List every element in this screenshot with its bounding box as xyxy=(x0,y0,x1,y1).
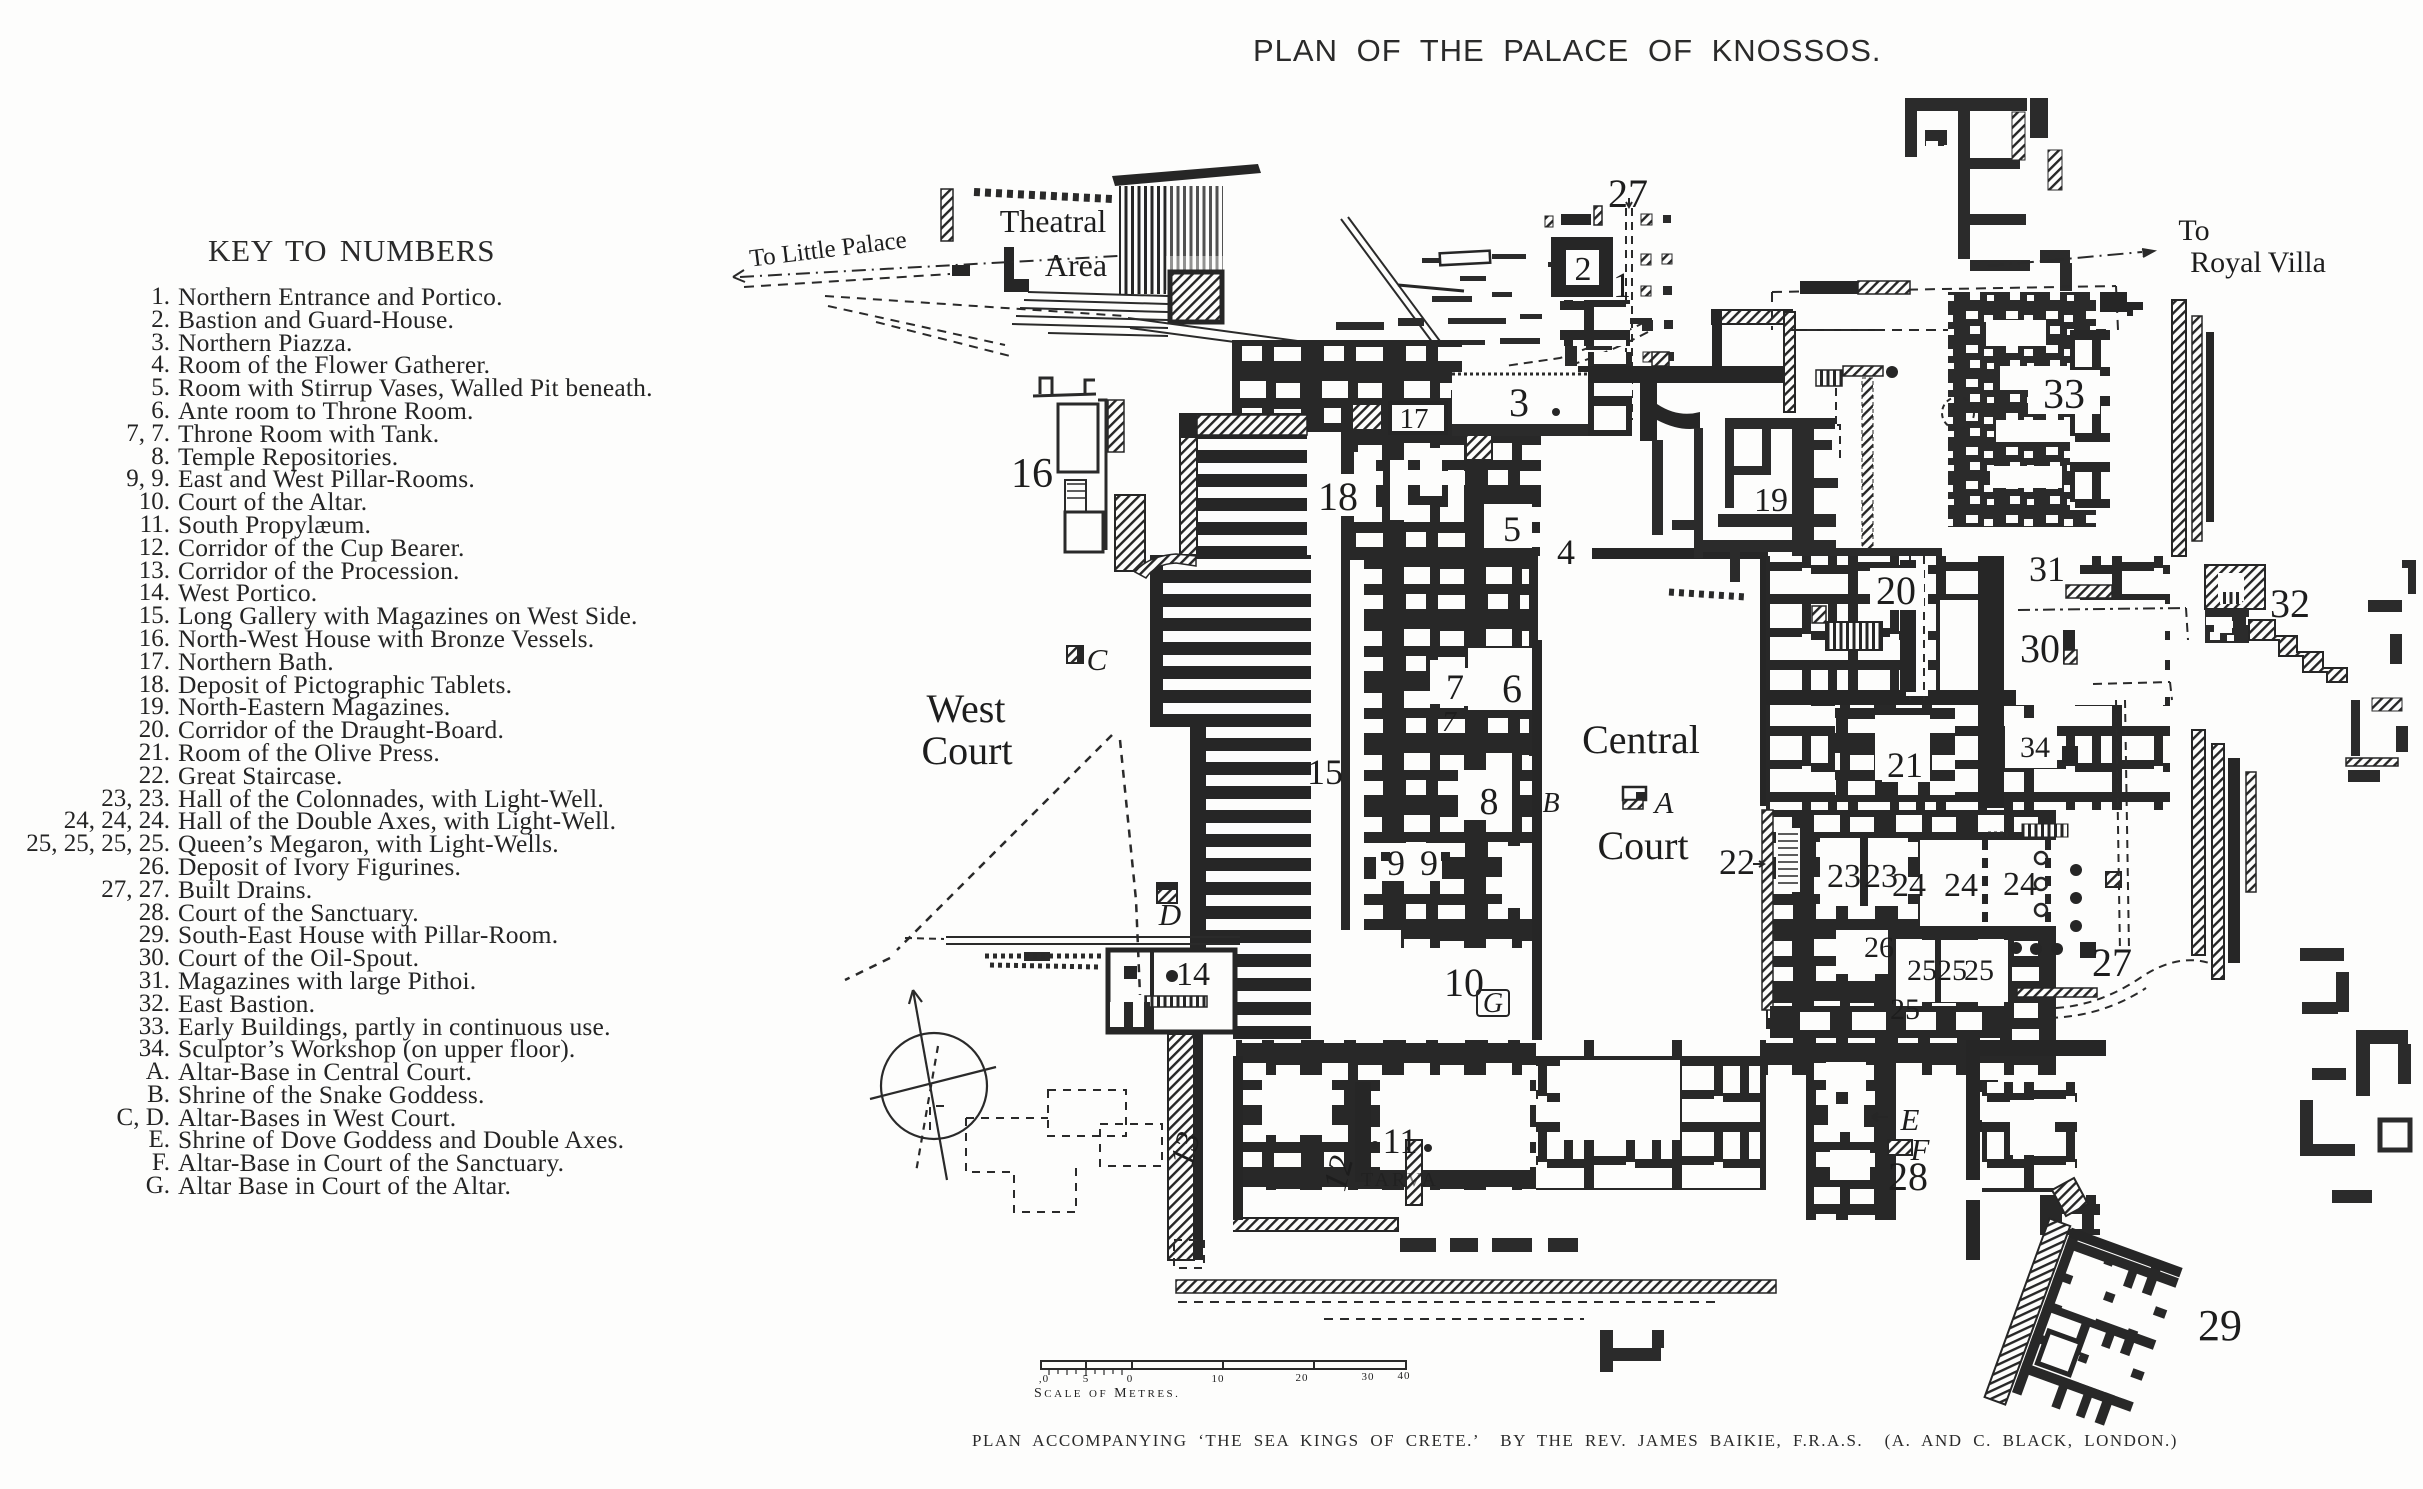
svg-text:D: D xyxy=(1158,897,1181,932)
svg-text:15: 15 xyxy=(1307,752,1343,792)
svg-text:24: 24 xyxy=(1892,867,1926,904)
svg-text:21: 21 xyxy=(1887,745,1923,785)
svg-text:C: C xyxy=(1087,642,1108,677)
svg-text:2: 2 xyxy=(1575,251,1592,288)
svg-text:24: 24 xyxy=(1944,867,1978,904)
svg-text:7: 7 xyxy=(1446,667,1464,707)
svg-text:To: To xyxy=(2178,214,2209,247)
svg-text:TARVA: TARVA xyxy=(1361,1169,1439,1191)
svg-text:Royal Villa: Royal Villa xyxy=(2190,246,2326,279)
svg-text:33: 33 xyxy=(2043,372,2085,418)
svg-text:9: 9 xyxy=(1420,843,1438,883)
svg-text:25: 25 xyxy=(1907,954,1937,987)
svg-text:B: B xyxy=(1542,788,1559,819)
svg-text:16: 16 xyxy=(1011,451,1053,497)
svg-text:4: 4 xyxy=(1557,532,1575,572)
svg-text:,0: ,0 xyxy=(1039,1373,1049,1385)
svg-text:30: 30 xyxy=(2020,626,2060,671)
svg-text:To Little Palace: To Little Palace xyxy=(748,227,908,273)
svg-text:Theatral: Theatral xyxy=(1000,203,1107,239)
svg-text:27: 27 xyxy=(1608,171,1648,216)
svg-text:31: 31 xyxy=(2029,549,2065,589)
svg-text:25: 25 xyxy=(1890,993,1920,1026)
svg-text:6: 6 xyxy=(1502,666,1522,711)
svg-text:25: 25 xyxy=(1964,954,1994,987)
svg-text:1: 1 xyxy=(1613,265,1631,305)
svg-text:34: 34 xyxy=(2020,731,2050,764)
svg-text:30: 30 xyxy=(1362,1371,1375,1383)
svg-text:5: 5 xyxy=(1503,509,1521,549)
svg-text:26: 26 xyxy=(1864,931,1894,964)
svg-text:29: 29 xyxy=(2198,1301,2242,1350)
svg-text:G: G xyxy=(1483,988,1503,1019)
svg-text:24: 24 xyxy=(2003,866,2037,903)
svg-text:18: 18 xyxy=(1318,474,1358,519)
svg-text:0: 0 xyxy=(1127,1373,1134,1385)
svg-text:23: 23 xyxy=(1827,858,1861,895)
svg-text:5: 5 xyxy=(1083,1373,1090,1385)
svg-text:32: 32 xyxy=(2270,581,2310,626)
svg-text:A: A xyxy=(1653,785,1675,820)
svg-text:11: 11 xyxy=(1383,1121,1418,1161)
svg-text:14: 14 xyxy=(1176,956,1210,993)
svg-text:West: West xyxy=(927,686,1006,731)
svg-text:SCALE OF METRES.: SCALE OF METRES. xyxy=(1034,1386,1180,1401)
svg-text:20: 20 xyxy=(1296,1372,1309,1384)
svg-text:17: 17 xyxy=(1400,403,1429,435)
svg-text:40: 40 xyxy=(1398,1370,1411,1382)
svg-text:7: 7 xyxy=(1442,707,1457,738)
svg-text:25: 25 xyxy=(1937,954,1967,987)
svg-text:9: 9 xyxy=(1387,843,1405,883)
svg-text:Court: Court xyxy=(1597,823,1688,868)
svg-text:28: 28 xyxy=(1888,1154,1928,1199)
svg-text:19: 19 xyxy=(1754,482,1788,519)
svg-text:10: 10 xyxy=(1212,1373,1225,1385)
svg-text:27: 27 xyxy=(2092,940,2132,985)
svg-text:20: 20 xyxy=(1876,568,1916,613)
svg-text:8: 8 xyxy=(1480,781,1499,823)
svg-text:22: 22 xyxy=(1719,842,1755,882)
svg-text:Area: Area xyxy=(1045,247,1107,283)
svg-text:Court: Court xyxy=(921,728,1012,773)
svg-text:3: 3 xyxy=(1509,380,1529,425)
svg-text:Central: Central xyxy=(1582,717,1700,762)
